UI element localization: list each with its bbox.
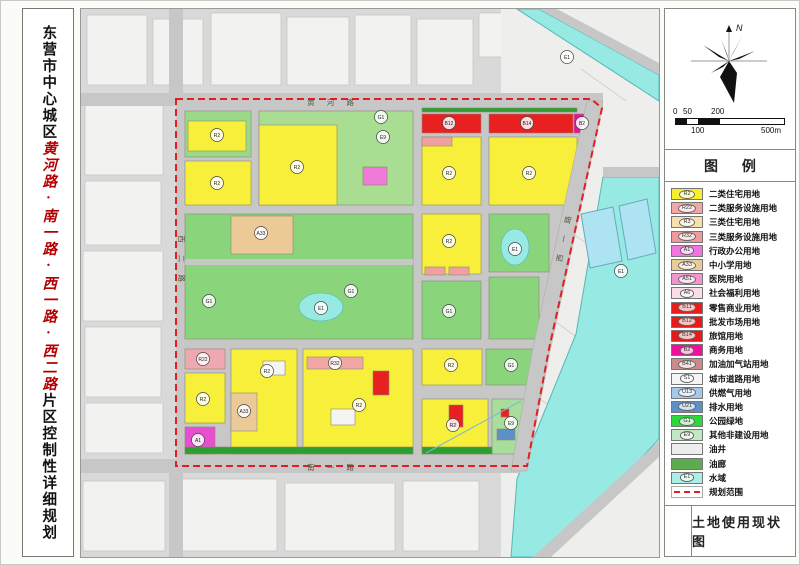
legend-label: 供燃气用地 [709,387,752,399]
legend-title: 图 例 [665,150,795,182]
legend-item: A6社会福利用地 [671,286,791,300]
legend-panel: N 0 50 200 100 500m 图 例 R2二类住宅用地R22二类服务设… [664,8,796,557]
plan-title-type: 片区控制性详细规划 [40,392,56,541]
legend-label: 规划范围 [709,486,743,498]
legend-code: R3 [679,218,694,227]
legend-code: A1 [680,246,695,255]
zone-code-text: E1 [618,269,624,275]
legend-code: A33 [678,261,696,270]
legend-code: U21 [678,402,696,411]
legend-code: E1 [680,473,695,482]
legend-code: S1 [680,374,695,383]
legend-label: 二类服务设施用地 [709,202,777,214]
legend-code: B41 [678,360,696,369]
legend-code: B2 [680,346,695,355]
legend-item: B11零售商业用地 [671,301,791,315]
legend-code: R32 [678,232,696,241]
legend-swatch: B12 [671,316,703,328]
legend-swatch [671,443,703,455]
map-panel: R2R2R2E9G1B12B14B2R2R2A33G1G1E1R2G1E1R22… [80,8,660,558]
legend-item: R2二类住宅用地 [671,187,791,201]
legend-label: 零售商业用地 [709,302,760,314]
scale-500m: 500m [761,126,781,135]
zone-code-text: R32 [330,361,339,367]
zone-code-text: R2 [448,363,455,369]
zone-code-text: G1 [508,363,515,369]
legend-code: R2 [679,190,694,199]
legend-item: U21排水用地 [671,400,791,414]
legend-code: B11 [678,303,695,312]
legend-item: B2商务用地 [671,343,791,357]
map-sheet-title: 土地使用现状图 [692,506,795,556]
legend-items: R2二类住宅用地R22二类服务设施用地R3三类住宅用地R32三类服务设施用地A1… [665,182,795,491]
legend-label: 油廊 [709,458,726,470]
legend-code: A51 [678,275,696,284]
road-label: 西 二 路 [177,235,187,287]
legend-label: 商务用地 [709,344,743,356]
legend-item: 油廊 [671,457,791,471]
legend-code: B12 [678,317,696,326]
legend-label: 水域 [709,472,726,484]
zone-code-text: G1 [378,115,385,121]
zone-code-text: E9 [508,421,514,427]
zone-code-text: R2 [526,171,533,177]
plan-title: 东营市中心城区黄河路·南一路·西一路·西二路片区控制性详细规划 [41,25,56,541]
legend-label: 行政办公用地 [709,245,760,257]
legend-swatch: A6 [671,287,703,299]
legend-item: R3三类住宅用地 [671,215,791,229]
zone-code-text: B2 [579,121,585,127]
zone-code-text: R2 [294,165,301,171]
legend-swatch: S1 [671,373,703,385]
legend-label: 三类服务设施用地 [709,231,777,243]
legend-code: R22 [678,204,696,213]
zone-code-text: R2 [214,133,221,139]
footer-title-block: 土地使用现状图 [665,505,795,556]
legend-item: E1水域 [671,471,791,485]
legend-code: U13 [678,388,696,397]
road-label: 南 一 路 [307,462,359,472]
legend-item: 油井 [671,442,791,456]
legend-swatch: E9 [671,429,703,441]
legend-label: 三类住宅用地 [709,216,760,228]
legend-label: 排水用地 [709,401,743,413]
zone-code-text: R2 [450,423,457,429]
legend-label: 旅馆用地 [709,330,743,342]
legend-code: E9 [680,431,695,440]
boundary-dash-swatch [674,491,700,493]
legend-item: E9其他非建设用地 [671,428,791,442]
north-label-holder: N [736,23,743,33]
legend-swatch: A51 [671,273,703,285]
legend-swatch [671,486,703,498]
legend-swatch: A33 [671,259,703,271]
legend-label: 加油加气站用地 [709,358,769,370]
legend-label: 中小学用地 [709,259,752,271]
zone-code-text: R2 [356,403,363,409]
legend-swatch: B2 [671,344,703,356]
zone-code-text: R22 [198,357,207,363]
land-use-map: R2R2R2E9G1B12B14B2R2R2A33G1G1E1R2G1E1R22… [81,9,659,557]
legend-item: U13供燃气用地 [671,386,791,400]
compass-rose: N [665,9,793,105]
legend-item: A33中小学用地 [671,258,791,272]
zone-code-text: E1 [564,55,570,61]
legend-label: 医院用地 [709,273,743,285]
legend-swatch: G1 [671,415,703,427]
legend-swatch: R32 [671,231,703,243]
left-title-strip: 东营市中心城区黄河路·南一路·西一路·西二路片区控制性详细规划 [22,8,74,557]
footer-empty-cell [665,506,692,556]
legend-swatch: E1 [671,472,703,484]
legend-label: 社会福利用地 [709,287,760,299]
legend-swatch: U21 [671,401,703,413]
legend-label: 批发市场用地 [709,316,760,328]
legend-item: A1行政办公用地 [671,244,791,258]
legend-label: 城市道路用地 [709,373,760,385]
legend-item: G1公园绿地 [671,414,791,428]
legend-swatch: R2 [671,188,703,200]
zone-code-text: E1 [318,306,324,312]
zone-code-text: B12 [445,121,454,127]
plan-title-roads: 黄河路·南一路·西一路·西二路 [40,140,56,392]
legend-label: 油井 [709,443,726,455]
legend-label: 其他非建设用地 [709,429,769,441]
legend-code: A6 [680,289,695,298]
compass-box: N 0 50 200 100 500m [665,9,795,150]
legend-item: B41加油加气站用地 [671,357,791,371]
zone-code-text: R2 [214,181,221,187]
zone-code-text: A33 [240,409,249,415]
legend-code: G1 [679,417,694,426]
scale-bar-graphic [675,118,785,125]
legend-swatch: B41 [671,358,703,370]
legend-item: A51医院用地 [671,272,791,286]
legend-item: S1城市道路用地 [671,371,791,385]
legend-item: B14旅馆用地 [671,329,791,343]
legend-swatch: U13 [671,387,703,399]
legend-swatch: A1 [671,245,703,257]
zone-code-text: R2 [446,239,453,245]
zone-code-text: R2 [446,171,453,177]
scale-50: 50 [683,107,692,116]
zone-code-text: R2 [264,369,271,375]
legend-item: B12批发市场用地 [671,315,791,329]
legend-code: B14 [678,331,696,340]
zone-code-text: R2 [200,397,207,403]
legend-swatch: R3 [671,216,703,228]
zone-code-text: B14 [523,121,532,127]
legend-label: 公园绿地 [709,415,743,427]
legend-swatch: B11 [671,302,703,314]
legend-swatch: B14 [671,330,703,342]
zone-code-text: G1 [348,289,355,295]
scale-0: 0 [673,107,677,116]
zone-code-text: A1 [195,438,201,444]
scale-bar: 0 50 200 100 500m [673,107,787,141]
legend-swatch: R22 [671,202,703,214]
legend-swatch [671,458,703,470]
zone-code-text: G1 [206,299,213,305]
legend-item: 规划范围 [671,485,791,499]
scale-200: 200 [711,107,724,116]
legend-label: 二类住宅用地 [709,188,760,200]
legend-item: R32三类服务设施用地 [671,230,791,244]
zone-code-text: E9 [380,135,386,141]
scale-100: 100 [691,126,704,135]
zone-code-text: A33 [257,231,266,237]
legend-item: R22二类服务设施用地 [671,201,791,215]
road-label: 黄 河 路 [307,97,359,107]
zone-code-text: G1 [446,309,453,315]
plan-title-area: 东营市中心城区 [40,25,56,141]
zone-code-text: E1 [512,247,518,253]
